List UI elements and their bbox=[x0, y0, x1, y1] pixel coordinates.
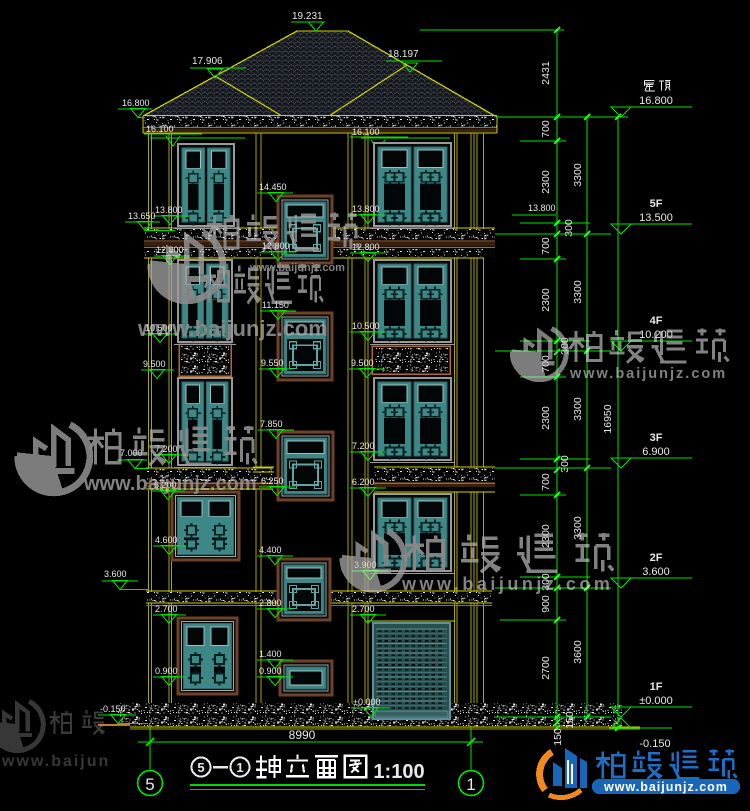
svg-text:6.900: 6.900 bbox=[642, 446, 670, 458]
svg-text:2300: 2300 bbox=[540, 170, 552, 194]
svg-text:2.700: 2.700 bbox=[352, 604, 375, 614]
svg-text:3600: 3600 bbox=[572, 640, 584, 664]
svg-text:2300: 2300 bbox=[540, 288, 552, 312]
svg-text:0.900: 0.900 bbox=[259, 666, 282, 676]
svg-text:www.baijunjz.com: www.baijunjz.com bbox=[401, 574, 613, 594]
svg-text:www.baijunjz.com: www.baijunjz.com bbox=[249, 262, 345, 274]
svg-text:150: 150 bbox=[552, 728, 564, 746]
svg-text:www.baijunjz.com: www.baijunjz.com bbox=[137, 316, 328, 341]
svg-text:6.250: 6.250 bbox=[261, 476, 284, 486]
svg-text:3300: 3300 bbox=[572, 280, 584, 304]
svg-text:1F: 1F bbox=[650, 681, 663, 693]
svg-text:-0.150: -0.150 bbox=[100, 704, 126, 714]
svg-text:9.550: 9.550 bbox=[261, 358, 284, 368]
svg-text:13.800: 13.800 bbox=[352, 204, 380, 214]
svg-text:3300: 3300 bbox=[572, 397, 584, 421]
svg-text:16.100: 16.100 bbox=[146, 124, 174, 134]
svg-text:700: 700 bbox=[540, 120, 552, 138]
svg-text:7.850: 7.850 bbox=[260, 419, 283, 429]
svg-text:-0.150: -0.150 bbox=[639, 738, 670, 750]
svg-text:www.baijunjz.com: www.baijunjz.com bbox=[603, 780, 728, 794]
svg-text:16.100: 16.100 bbox=[352, 127, 380, 137]
svg-text:5: 5 bbox=[197, 760, 204, 775]
svg-text:3300: 3300 bbox=[572, 163, 584, 187]
svg-text:13.800: 13.800 bbox=[155, 205, 183, 215]
svg-text:3F: 3F bbox=[650, 432, 663, 444]
svg-text:900: 900 bbox=[540, 595, 552, 613]
svg-text:16.800: 16.800 bbox=[122, 98, 150, 108]
svg-text:13.800: 13.800 bbox=[528, 203, 556, 213]
svg-text:8990: 8990 bbox=[289, 728, 316, 742]
svg-text:1: 1 bbox=[466, 775, 475, 794]
svg-text:4.400: 4.400 bbox=[259, 545, 282, 555]
svg-text:±0.000: ±0.000 bbox=[639, 695, 673, 707]
svg-text:3.600: 3.600 bbox=[104, 569, 127, 579]
svg-text:9.500: 9.500 bbox=[143, 359, 166, 369]
svg-text:13.650: 13.650 bbox=[128, 211, 156, 221]
svg-text:17.906: 17.906 bbox=[192, 56, 223, 67]
svg-text:700: 700 bbox=[540, 237, 552, 255]
svg-text:6.200: 6.200 bbox=[352, 477, 375, 487]
svg-text:3.600: 3.600 bbox=[642, 566, 670, 578]
svg-text:16.800: 16.800 bbox=[639, 95, 673, 107]
svg-text:300: 300 bbox=[559, 455, 571, 473]
svg-text:9.500: 9.500 bbox=[351, 358, 374, 368]
svg-text:10.500: 10.500 bbox=[352, 321, 380, 331]
svg-text:14.450: 14.450 bbox=[259, 182, 287, 192]
svg-text:5F: 5F bbox=[650, 198, 663, 210]
svg-text:5: 5 bbox=[145, 775, 154, 794]
svg-text:4F: 4F bbox=[650, 315, 663, 327]
svg-text:2.700: 2.700 bbox=[155, 604, 178, 614]
svg-text:1.400: 1.400 bbox=[259, 649, 282, 659]
svg-text:1:100: 1:100 bbox=[373, 761, 424, 783]
svg-text:www.baijun: www.baijun bbox=[1, 753, 110, 770]
svg-text:13.500: 13.500 bbox=[639, 212, 673, 224]
svg-text:2300: 2300 bbox=[540, 406, 552, 430]
svg-text:18.197: 18.197 bbox=[388, 49, 419, 60]
svg-text:±0.000: ±0.000 bbox=[353, 697, 380, 707]
svg-text:www.baijunjz.com: www.baijunjz.com bbox=[83, 473, 257, 495]
svg-text:700: 700 bbox=[540, 473, 552, 491]
svg-text:19.231: 19.231 bbox=[292, 11, 323, 22]
svg-text:www.baijunjz.com: www.baijunjz.com bbox=[569, 366, 727, 382]
svg-text:16950: 16950 bbox=[602, 404, 614, 433]
svg-text:0.900: 0.900 bbox=[155, 666, 178, 676]
svg-text:1: 1 bbox=[236, 760, 243, 775]
svg-text:2.800: 2.800 bbox=[259, 598, 282, 608]
svg-text:2431: 2431 bbox=[540, 61, 552, 85]
svg-text:4.600: 4.600 bbox=[155, 535, 178, 545]
svg-text:150: 150 bbox=[564, 711, 576, 729]
svg-text:2F: 2F bbox=[650, 552, 663, 564]
svg-text:7.200: 7.200 bbox=[352, 441, 375, 451]
svg-text:2700: 2700 bbox=[540, 656, 552, 680]
svg-text:12.800: 12.800 bbox=[352, 242, 380, 252]
